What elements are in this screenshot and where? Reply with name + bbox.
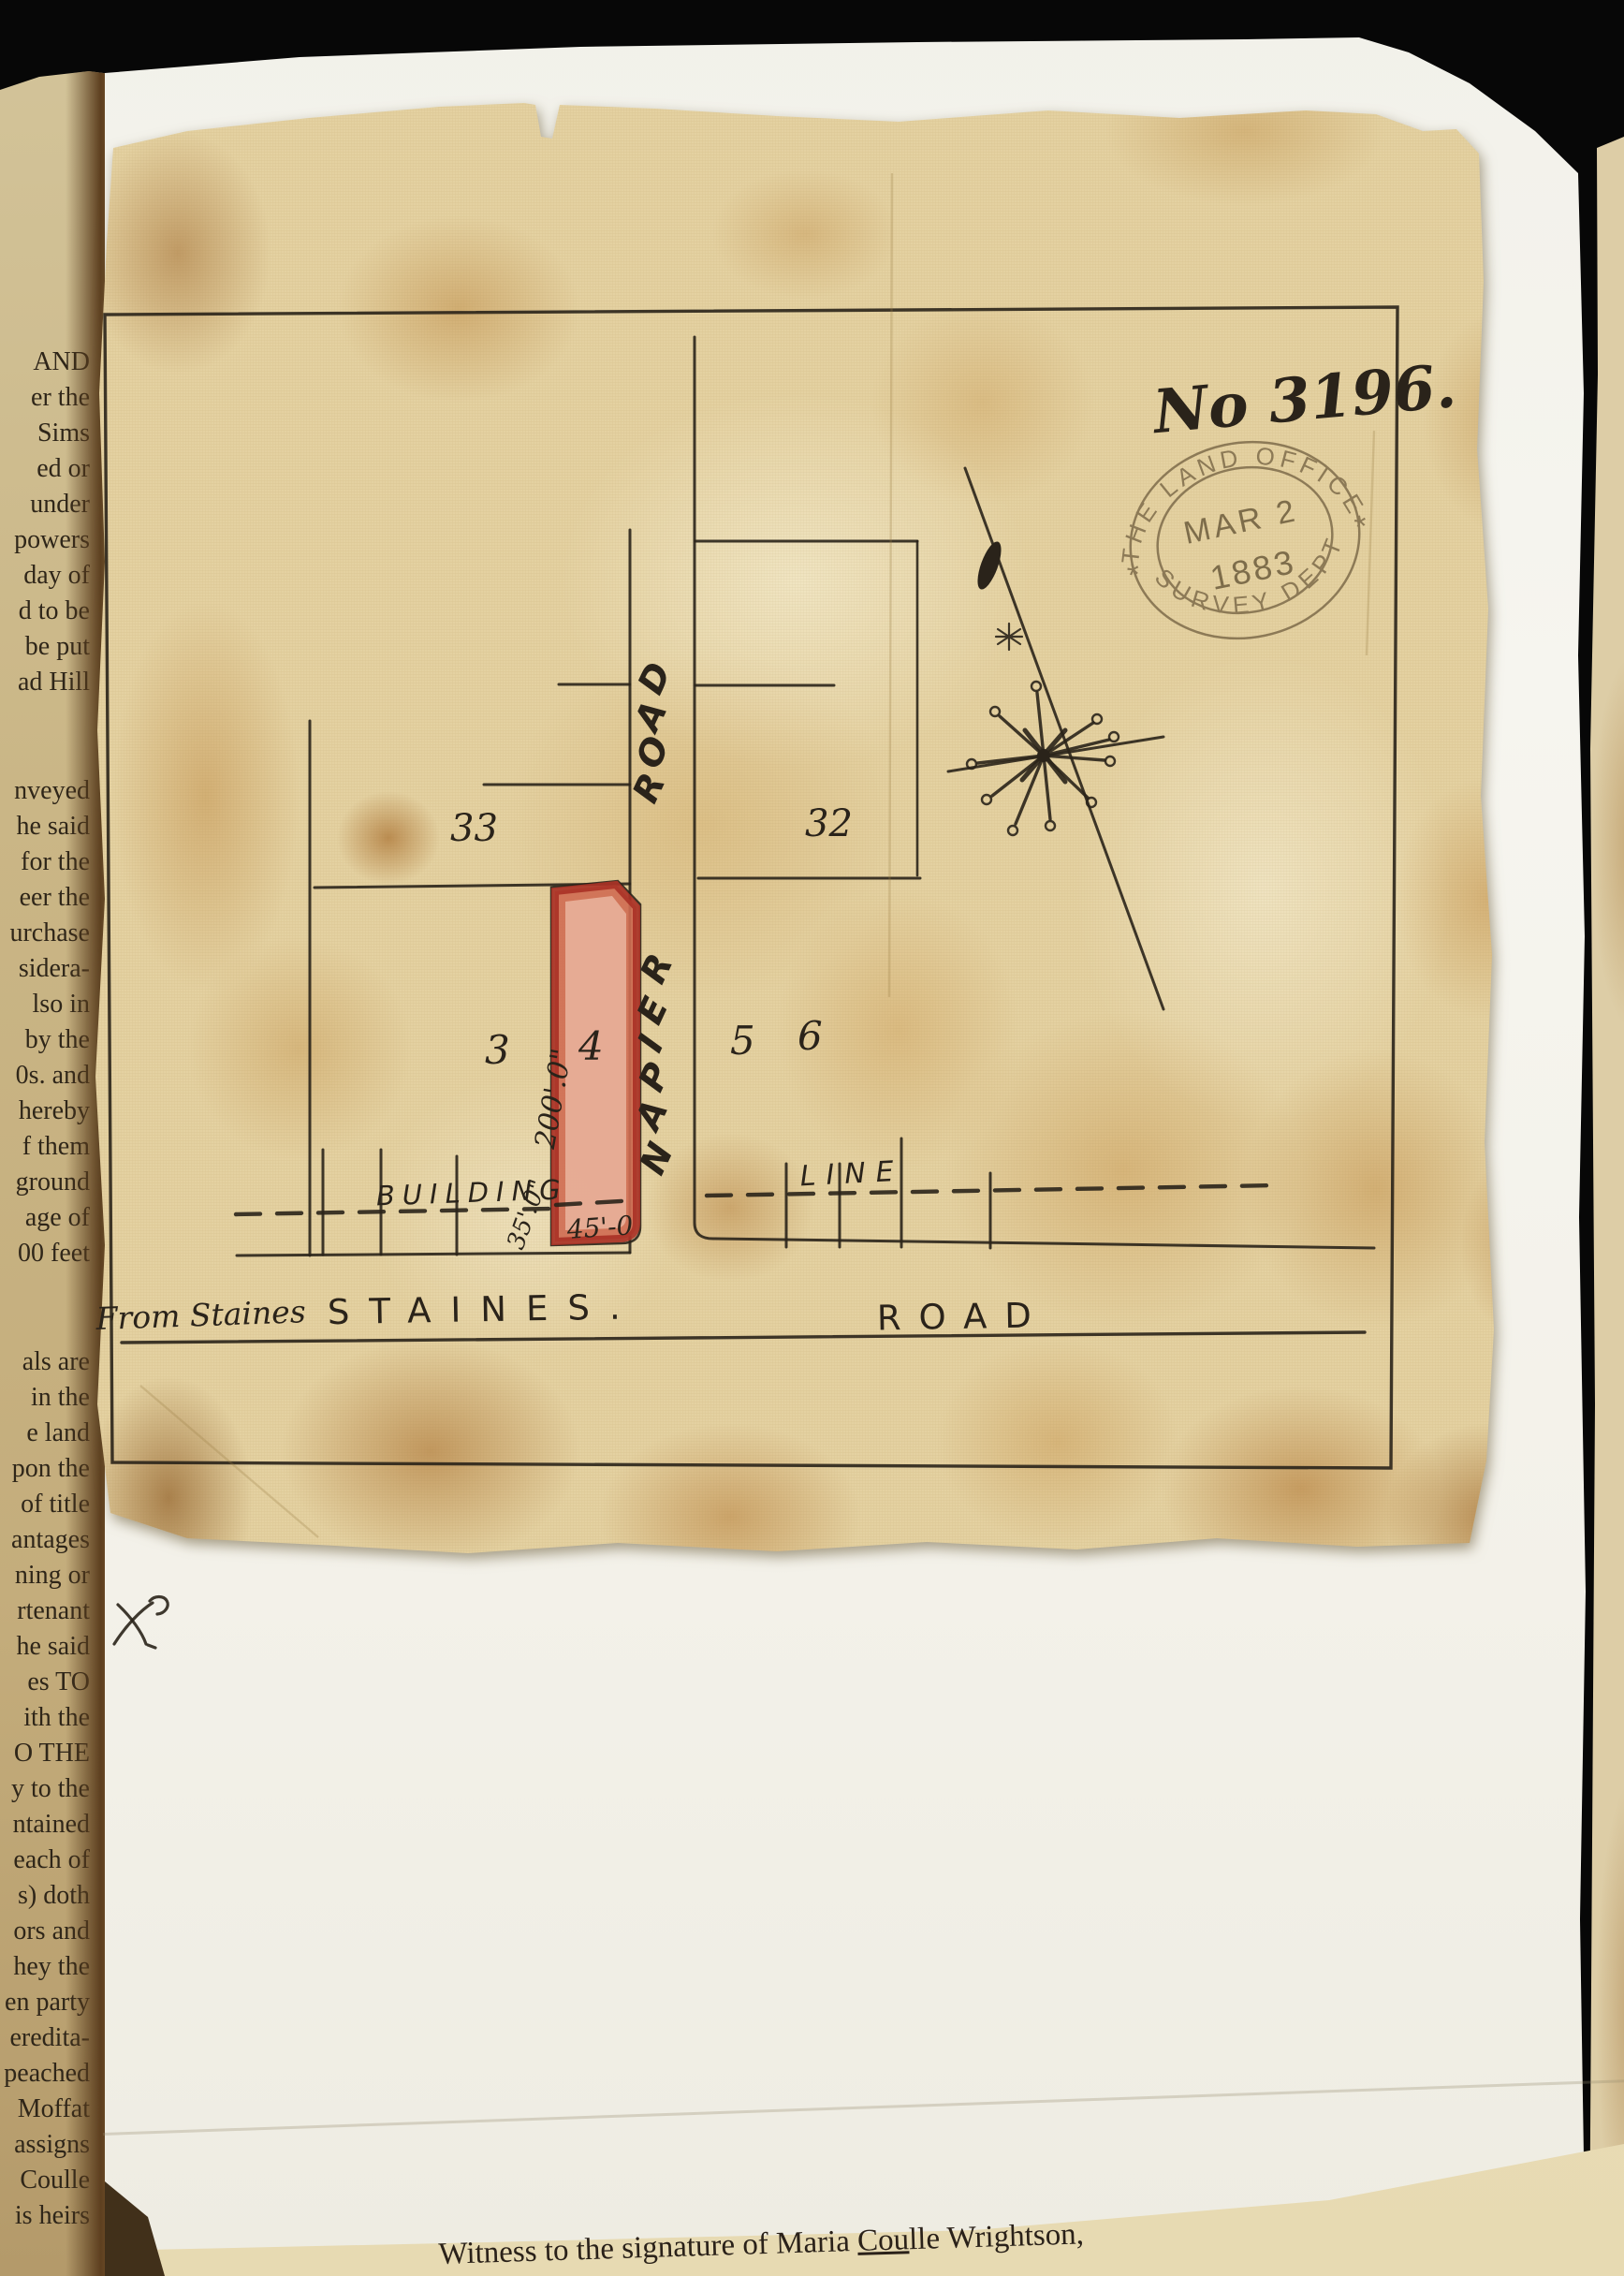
survey-map-cloth [0, 0, 1624, 2276]
scanned-survey-document: AND er the Sims ed or under powers day o… [0, 0, 1624, 2276]
cloth-weave-texture [0, 0, 1624, 2276]
survey-map [0, 0, 1624, 2276]
